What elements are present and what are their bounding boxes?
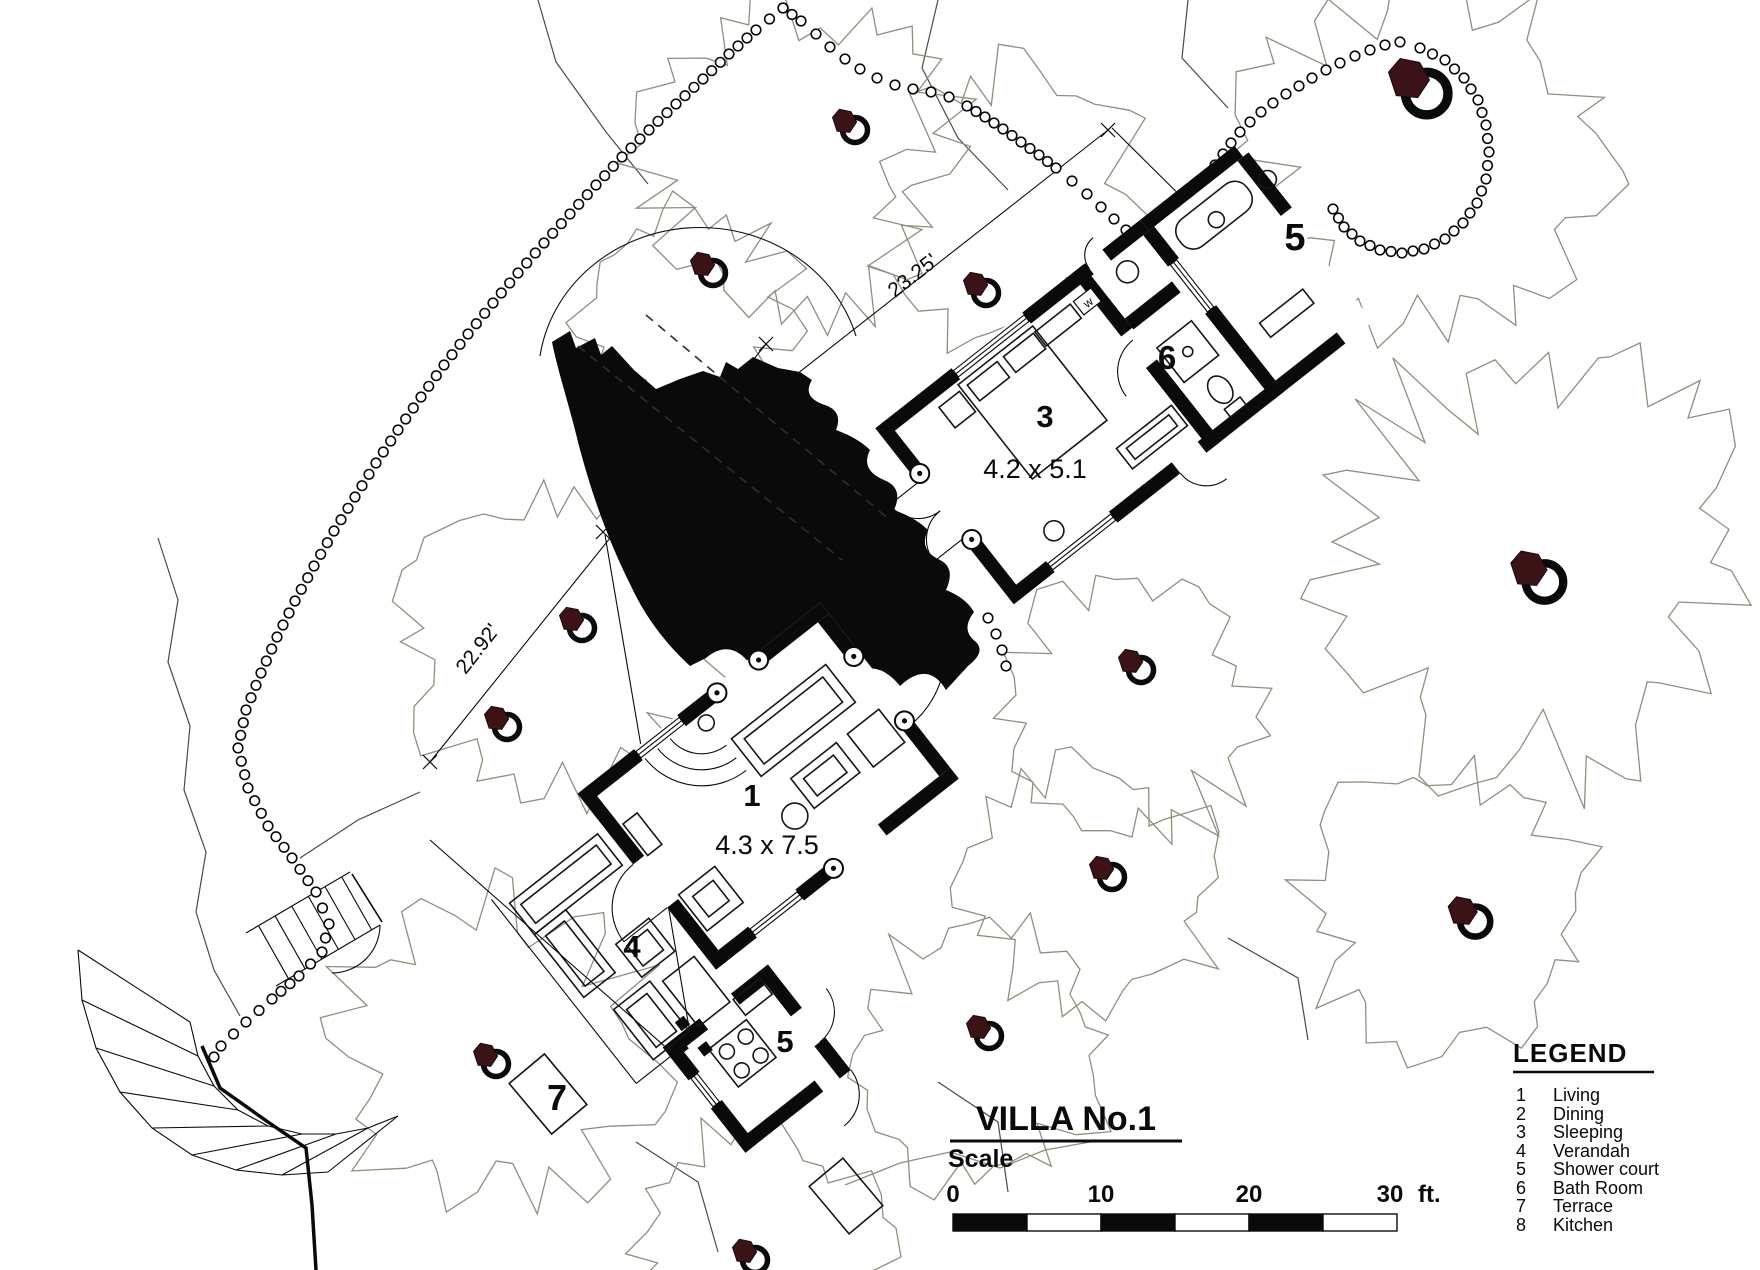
stepping-stone (1307, 73, 1317, 83)
stair-step (236, 1134, 336, 1170)
stepping-stone (271, 832, 281, 842)
stepping-stone (716, 58, 726, 68)
tree-trunk-marker (1090, 856, 1125, 889)
stepping-stone (1245, 117, 1255, 127)
drawing-sheet: 1 4.3 x 7.5 3 4.2 x 5.1 4 5 5 6 7 23.25'… (0, 0, 1760, 1270)
legend-label: Sleeping (1553, 1122, 1623, 1142)
stepping-stone (1428, 49, 1438, 59)
door-leaf-line (492, 900, 637, 1084)
tree-trunk-marker (1511, 551, 1563, 601)
room-dim-living: 4.3 x 7.5 (715, 830, 819, 860)
roof-canopy-shadow (552, 315, 980, 697)
boardwalk-plank (325, 887, 355, 940)
trunk-hexagon-icon (833, 109, 857, 132)
stepping-stone (1477, 186, 1487, 196)
stepping-stone (233, 743, 243, 753)
boardwalk-plank (258, 926, 288, 979)
stepping-stone (796, 16, 806, 26)
tree-canopy (950, 747, 1219, 1021)
stepping-stone (251, 681, 261, 691)
tree-trunk-marker (1389, 59, 1448, 115)
scale-bar-segment (1175, 1214, 1249, 1231)
stepping-stone (778, 3, 788, 13)
stepping-stone (1109, 214, 1119, 224)
stepping-stone (1481, 174, 1491, 184)
room-label-kitchen-court: 5 (776, 1024, 793, 1059)
stepping-stone (1355, 236, 1365, 246)
stepping-stone (872, 73, 882, 83)
stepping-stone (216, 1041, 226, 1051)
tree-trunk-marker (964, 272, 999, 305)
boardwalk-plank (342, 877, 372, 930)
stepping-stone (1484, 147, 1494, 157)
stair-step (82, 1000, 198, 1056)
stepping-stone (1007, 131, 1017, 141)
stepping-stone (1430, 239, 1440, 249)
stepping-stone (971, 107, 981, 117)
stepping-stone (644, 125, 654, 135)
stepping-stone (635, 134, 645, 144)
scale-label: Scale (948, 1145, 1013, 1173)
stepping-stone (237, 757, 247, 767)
stepping-stone (463, 329, 473, 339)
stepping-stone (1459, 73, 1469, 83)
room-dim-sleeping: 4.2 x 5.1 (983, 454, 1087, 484)
scale-bar-segment (1249, 1214, 1323, 1231)
furniture-outline (626, 994, 676, 1048)
stepping-stone (989, 118, 999, 128)
trunk-hexagon-icon (691, 252, 715, 275)
stepping-stone (323, 538, 333, 548)
legend-row: 8 Kitchen (1516, 1215, 1613, 1235)
stepping-stone (257, 809, 267, 819)
stepping-stone (1034, 150, 1044, 160)
scale-tick-20: 20 (1236, 1181, 1263, 1208)
stepping-stone (1051, 163, 1061, 173)
stepping-stone (497, 288, 507, 298)
stepping-stone (303, 876, 313, 886)
tree-canopy (616, 0, 976, 335)
stepping-stone (1440, 55, 1450, 65)
stepping-stone (811, 29, 821, 39)
tree-trunk-marker (560, 607, 595, 640)
stepping-stone (825, 42, 835, 52)
scale-unit: ft. (1418, 1181, 1441, 1208)
scale-bar (953, 1214, 1397, 1231)
stepping-stone (751, 25, 761, 35)
tree-canopy (1285, 756, 1602, 1069)
stepping-stone (321, 933, 331, 943)
stepping-stone (962, 101, 972, 111)
tree-trunk-marker (474, 1043, 509, 1076)
stepping-stone (1082, 189, 1092, 199)
trunk-hexagon-icon (1119, 649, 1143, 672)
stepping-stone (278, 620, 288, 630)
stepping-stone (1043, 157, 1053, 167)
stair-step (78, 950, 190, 1022)
stepping-stone (998, 124, 1008, 134)
stepping-stone (1483, 134, 1493, 144)
terrain-line (1182, 0, 1228, 108)
legend-num: 3 (1516, 1122, 1526, 1142)
stepping-stone (209, 1052, 219, 1062)
stepping-stone (279, 843, 289, 853)
stepping-stone (944, 92, 954, 102)
gate-post (352, 874, 382, 922)
stepping-stone (724, 49, 734, 59)
stepping-stone (285, 979, 295, 989)
legend-row: 4 Verandah (1516, 1141, 1630, 1161)
door-leaf-line (934, 539, 962, 561)
stepping-stone (243, 783, 253, 793)
stepping-stone (357, 481, 367, 491)
stepping-stone (591, 180, 601, 190)
stepping-stone (548, 229, 558, 239)
stepping-stone (1321, 65, 1331, 75)
legend-num: 2 (1516, 1104, 1526, 1124)
stepping-stone (1016, 137, 1026, 147)
legend-row: 2 Dining (1516, 1104, 1604, 1124)
stepping-stone (267, 994, 277, 1004)
stepping-stone (317, 947, 327, 957)
stepping-stone (1347, 229, 1357, 239)
stepping-stone (1472, 198, 1482, 208)
legend-label: Dining (1553, 1104, 1604, 1124)
stepping-stone (1375, 245, 1385, 255)
legend-label: Shower court (1553, 1159, 1659, 1179)
stepping-stone (539, 238, 549, 248)
stepping-stone (742, 33, 752, 43)
stepping-stone (574, 200, 584, 210)
stepping-stone (626, 143, 636, 153)
legend-num: 8 (1516, 1215, 1526, 1235)
stepping-stone (1328, 204, 1338, 214)
stepping-stone (424, 382, 434, 392)
terrain-line (1228, 938, 1308, 1040)
legend-row: 6 Bath Room (1516, 1178, 1643, 1198)
stepping-stone (239, 718, 249, 728)
stepping-stone (908, 84, 918, 94)
stepping-stone (262, 656, 272, 666)
room-label-terrace: 7 (547, 1077, 567, 1118)
stepping-stone (997, 645, 1007, 655)
scale-tick-0: 0 (946, 1181, 959, 1208)
stepping-stone (1483, 161, 1493, 171)
stepping-stone (1350, 51, 1360, 61)
stepping-stone (765, 14, 775, 24)
legend-num: 4 (1516, 1141, 1526, 1161)
stepping-stone (379, 447, 389, 457)
scale-bar-segment (1027, 1214, 1101, 1231)
legend-label: Terrace (1553, 1196, 1613, 1216)
stepping-stone (284, 608, 294, 618)
stepping-stone (267, 644, 277, 654)
stepping-stone (272, 632, 282, 642)
stepping-stone (1365, 45, 1375, 55)
terrain-line (636, 1142, 718, 1252)
stair-step (152, 1126, 268, 1128)
stepping-stone (309, 561, 319, 571)
roof-dome-outline (540, 228, 856, 356)
stepping-stone (600, 171, 610, 181)
trunk-hexagon-icon (474, 1043, 498, 1066)
legend-num: 5 (1516, 1159, 1526, 1179)
stepping-stone (1380, 40, 1390, 50)
stepping-stone (671, 99, 681, 109)
roof-shadow-shape (552, 331, 980, 690)
stepping-stone (256, 668, 266, 678)
stepping-stone (689, 83, 699, 93)
stepping-stone (1408, 246, 1418, 256)
tree-trunk-marker (833, 109, 868, 142)
legend-row: 5 Shower court (1516, 1159, 1659, 1179)
stepping-stone (254, 1006, 264, 1016)
legend-title: LEGEND (1513, 1038, 1627, 1068)
stepping-stone (1096, 202, 1106, 212)
stepping-stone (1365, 241, 1375, 251)
stepping-stone (287, 853, 297, 863)
legend-row: 7 Terrace (1516, 1196, 1613, 1216)
stepping-stone (439, 360, 449, 370)
stepping-stone (1481, 120, 1491, 130)
stepping-stone (1235, 127, 1245, 137)
scale-bar-segment (1323, 1214, 1397, 1231)
tree-canopy (320, 868, 677, 1214)
stepping-stone (653, 117, 663, 127)
stepping-stone (364, 470, 374, 480)
tree-trunk-marker (967, 1015, 1002, 1048)
stepping-stone (303, 573, 313, 583)
stepping-stone (513, 268, 523, 278)
stepping-stone (1458, 218, 1468, 228)
stepping-stone (1397, 248, 1407, 258)
trunk-hexagon-icon (733, 1239, 757, 1262)
stepping-stone (983, 613, 993, 623)
scale-tick-30: 30 (1377, 1181, 1404, 1208)
scale-tick-10: 10 (1088, 1181, 1115, 1208)
garden-staircase (78, 872, 398, 1175)
stepping-stone (240, 770, 250, 780)
tree-trunk-marker (485, 706, 520, 739)
stepping-stone (1334, 213, 1344, 223)
stepping-stone (409, 403, 419, 413)
stepping-stone (1450, 64, 1460, 74)
stepping-stone (522, 258, 532, 268)
stepping-stone (480, 309, 490, 319)
stepping-stone (306, 959, 316, 969)
legend-label: Verandah (1553, 1141, 1630, 1161)
trunk-hexagon-icon (560, 607, 584, 630)
stepping-stone (680, 91, 690, 101)
stepping-stone (329, 526, 339, 536)
stepping-stone (241, 705, 251, 715)
stepping-stone (1419, 244, 1429, 254)
site-dimension-a: 23.25' (884, 249, 943, 302)
stepping-stone (662, 108, 672, 118)
stepping-stone (1449, 226, 1459, 236)
stepping-stone (246, 693, 256, 703)
trunk-hexagon-icon (1090, 856, 1114, 879)
stepping-stone (1025, 144, 1035, 154)
tree-canopy (626, 1118, 901, 1270)
stepping-stone (505, 278, 515, 288)
stepping-stone (241, 1017, 251, 1027)
stepping-stone (980, 112, 990, 122)
stepping-stone (229, 1029, 239, 1039)
stepping-stone (733, 41, 743, 51)
stair-step (120, 1092, 238, 1110)
furniture-outline (510, 834, 623, 935)
trunk-hexagon-icon (1448, 897, 1477, 925)
stepping-stone (1415, 43, 1425, 53)
stepping-stone (609, 162, 619, 172)
stepping-stone (890, 80, 900, 90)
room-floor (663, 965, 851, 1153)
room-label-bathroom: 6 (1158, 339, 1176, 376)
stepping-stone (1256, 107, 1266, 117)
stepping-stone (316, 550, 326, 560)
stepping-stone (263, 821, 273, 831)
stepping-stone (565, 209, 575, 219)
lounger-outline (809, 1158, 883, 1234)
legend-row: 1 Living (1516, 1085, 1600, 1105)
stepping-stone (617, 152, 627, 162)
stepping-stone (1465, 208, 1475, 218)
scale-bar-segment (953, 1214, 1027, 1231)
stepping-stone (1281, 89, 1291, 99)
legend-label: Bath Room (1553, 1178, 1643, 1198)
stepping-stone (1268, 98, 1278, 108)
stepping-stone (1067, 176, 1077, 186)
boardwalk-plank (275, 916, 305, 969)
stepping-stone (1001, 661, 1011, 671)
stepping-stone (707, 66, 717, 76)
trunk-hexagon-icon (1511, 551, 1547, 586)
stepping-stone (318, 903, 328, 913)
stepping-stone (926, 87, 936, 97)
room-label-shower-court: 5 (1284, 217, 1305, 259)
room-label-living: 1 (743, 778, 760, 813)
furniture-outline (534, 910, 615, 998)
stepping-stone (371, 458, 381, 468)
stepping-stone (855, 64, 865, 74)
stepping-stone (447, 350, 457, 360)
stepping-stone (991, 629, 1001, 639)
stepping-stone (350, 492, 360, 502)
trunk-hexagon-icon (1389, 59, 1430, 98)
legend-row: 3 Sleeping (1516, 1122, 1623, 1142)
stepping-stone (401, 414, 411, 424)
legend-num: 1 (1516, 1085, 1526, 1105)
legend-label: Living (1553, 1085, 1600, 1105)
trunk-hexagon-icon (964, 272, 988, 295)
stepping-stone (1477, 108, 1487, 118)
stair-inner-rail (190, 1022, 398, 1134)
stepping-stone (1386, 247, 1396, 257)
stepping-stone (336, 515, 346, 525)
tree-trunk-marker (1448, 897, 1490, 937)
stepping-stone (386, 436, 396, 446)
stepping-stone (583, 190, 593, 200)
stepping-stone (1466, 84, 1476, 94)
stepping-stone (1395, 37, 1405, 47)
tree-trunk-markers (474, 59, 1564, 1270)
stepping-stone (324, 919, 334, 929)
legend-num: 6 (1516, 1178, 1526, 1198)
stepping-stone (290, 596, 300, 606)
legend-num: 7 (1516, 1196, 1526, 1216)
site-plan-canvas: 1 4.3 x 7.5 3 4.2 x 5.1 4 5 5 6 7 23.25'… (0, 0, 1760, 1270)
stepping-stone (294, 971, 304, 981)
stepping-stone (1335, 58, 1345, 68)
site-dimension-b: 22.92' (451, 620, 504, 679)
stepping-stone (1294, 81, 1304, 91)
stepping-stone (393, 425, 403, 435)
stepping-stone (488, 298, 498, 308)
tree-trunk-marker (733, 1239, 768, 1270)
stepping-stone (698, 74, 708, 84)
stepping-stone (295, 865, 305, 875)
stepping-stone (472, 319, 482, 329)
stepping-stone (455, 340, 465, 350)
stepping-stone (276, 987, 286, 997)
stepping-stone (250, 796, 260, 806)
trunk-hexagon-icon (485, 706, 509, 729)
stepping-stone (297, 585, 307, 595)
terrain-line (538, 0, 648, 184)
stepping-stone (840, 54, 850, 64)
legend: LEGEND 1 Living 2 Dining 3 Sleeping 4 Ve… (1513, 1038, 1659, 1235)
stepping-stone (236, 731, 246, 741)
stepping-stone (416, 392, 426, 402)
stepping-stone (557, 219, 567, 229)
stepping-stone (531, 248, 541, 258)
legend-label: Kitchen (1553, 1215, 1613, 1235)
title-block: VILLA No.1 Scale 0 10 20 30 ft. (946, 1100, 1440, 1231)
tree-trunk-marker (1119, 649, 1154, 682)
tree-canopy-outlines (320, 0, 1751, 1270)
trunk-hexagon-icon (967, 1015, 991, 1038)
terrain-line (158, 538, 240, 1016)
stepping-stone (787, 10, 797, 20)
room-label-sleeping: 3 (1036, 399, 1053, 434)
tree-canopy (994, 575, 1272, 844)
stepping-stone (1339, 222, 1349, 232)
terrain-line (300, 792, 420, 858)
stepping-stone (432, 371, 442, 381)
site-boundary-heavy (202, 1046, 316, 1270)
stepping-stone (1440, 234, 1450, 244)
drawing-title: VILLA No.1 (976, 1100, 1156, 1138)
stepping-stone (343, 504, 353, 514)
room-label-verandah: 4 (623, 929, 641, 964)
scale-bar-segment (1101, 1214, 1175, 1231)
stepping-stone (1473, 95, 1483, 105)
stepping-stone (311, 887, 321, 897)
